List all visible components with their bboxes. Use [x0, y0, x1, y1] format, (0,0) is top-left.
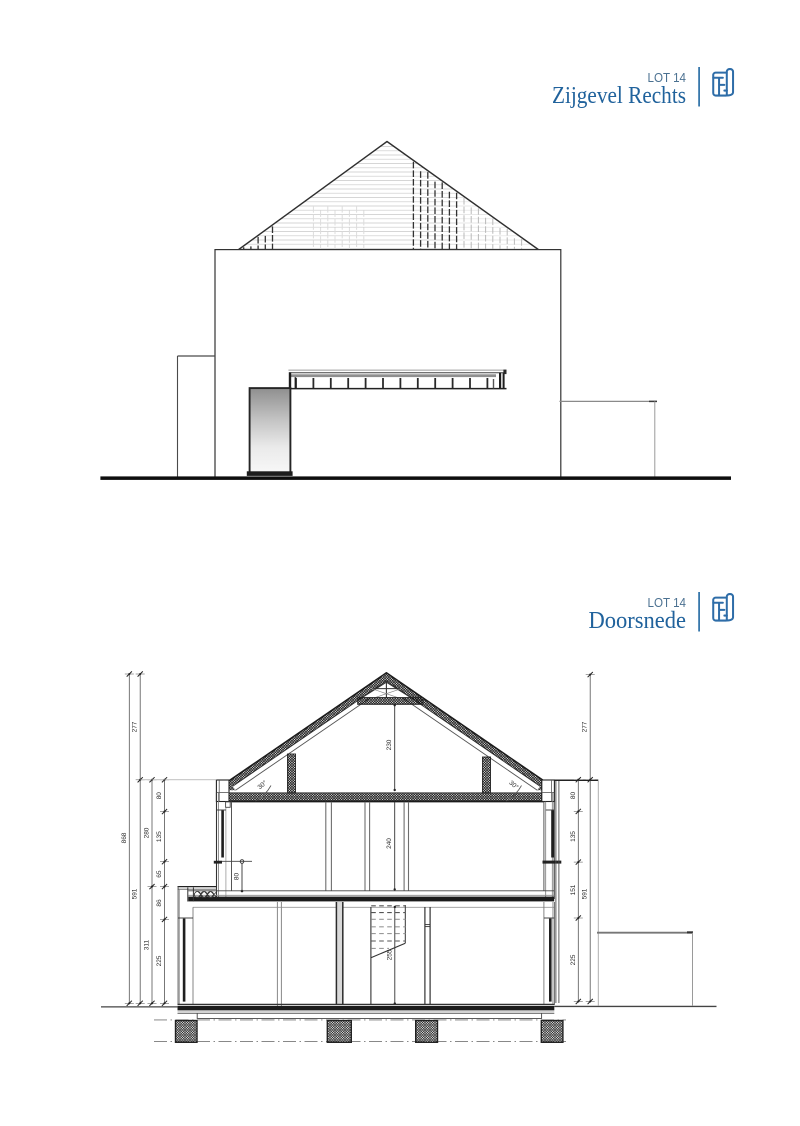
svg-text:65: 65 — [156, 870, 163, 878]
svg-text:Zijgevel Rechts: Zijgevel Rechts — [552, 83, 686, 109]
svg-text:135: 135 — [156, 831, 163, 842]
svg-text:255: 255 — [386, 949, 393, 960]
svg-text:80: 80 — [234, 873, 241, 881]
svg-text:30°: 30° — [256, 778, 269, 791]
svg-text:868: 868 — [121, 832, 128, 843]
svg-text:280: 280 — [144, 827, 151, 838]
svg-text:225: 225 — [156, 955, 163, 966]
svg-text:277: 277 — [582, 721, 589, 732]
svg-text:135: 135 — [570, 831, 577, 842]
svg-text:230: 230 — [386, 739, 393, 750]
svg-text:311: 311 — [144, 939, 151, 950]
svg-text:240: 240 — [386, 838, 393, 849]
svg-text:591: 591 — [132, 888, 139, 899]
svg-text:80: 80 — [156, 792, 163, 800]
svg-text:86: 86 — [156, 899, 163, 907]
svg-text:151: 151 — [570, 884, 577, 895]
svg-text:591: 591 — [582, 888, 589, 899]
svg-text:Doorsnede: Doorsnede — [589, 608, 687, 634]
svg-text:80: 80 — [570, 792, 577, 800]
svg-text:225: 225 — [570, 954, 577, 965]
svg-text:277: 277 — [132, 721, 139, 732]
